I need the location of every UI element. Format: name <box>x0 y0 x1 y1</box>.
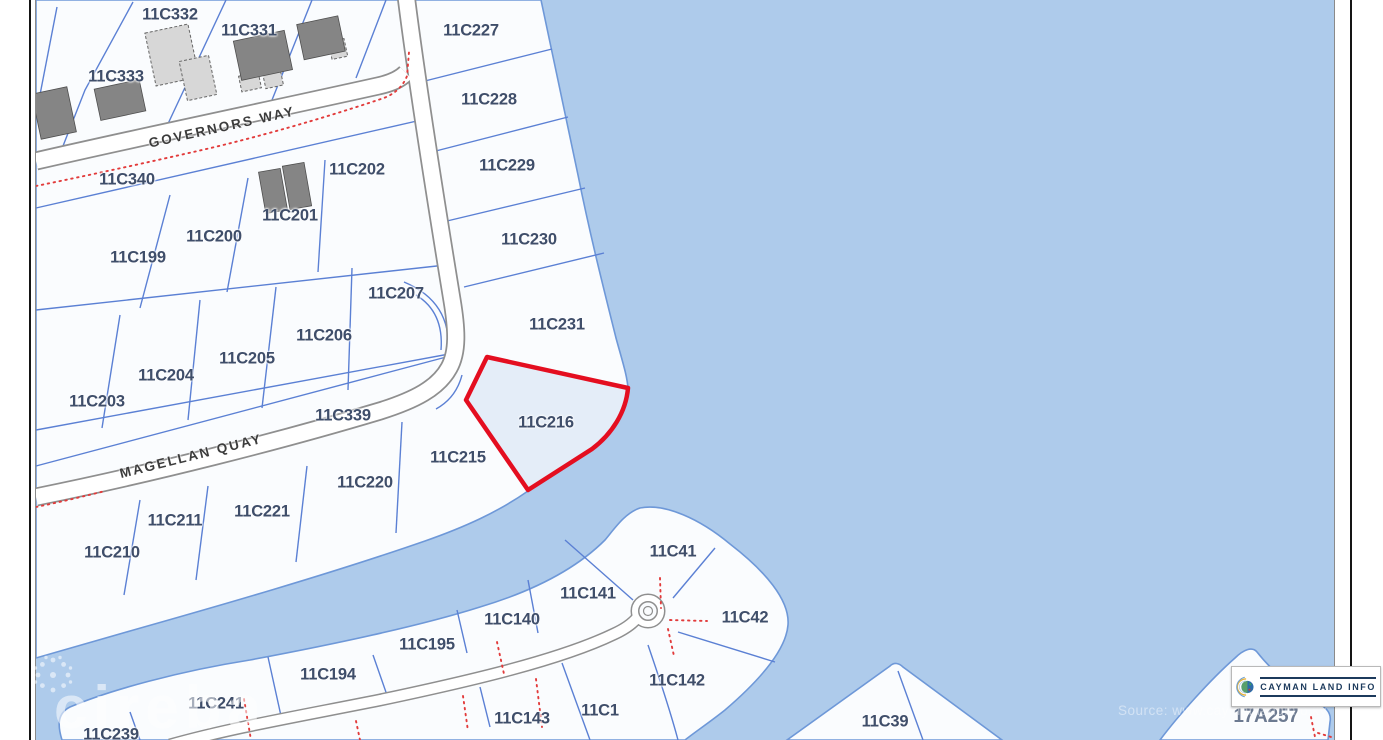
left-margin <box>0 0 29 740</box>
left-neat-line <box>35 0 36 740</box>
map-page: 11C33211C33111C33311C22711C22811C22911C2… <box>0 0 1383 740</box>
right-margin <box>1352 0 1383 740</box>
cireba-watermark: cireba <box>30 652 76 703</box>
map-canvas[interactable] <box>0 0 1383 740</box>
cayman-land-info-logo-icon <box>1236 671 1256 703</box>
cayman-land-info-logo: CAYMAN LAND INFO <box>1231 666 1381 707</box>
right-border-gap <box>1335 0 1350 740</box>
cayman-land-info-logo-text: CAYMAN LAND INFO <box>1260 677 1376 697</box>
cireba-watermark-text: cireba <box>54 678 267 738</box>
